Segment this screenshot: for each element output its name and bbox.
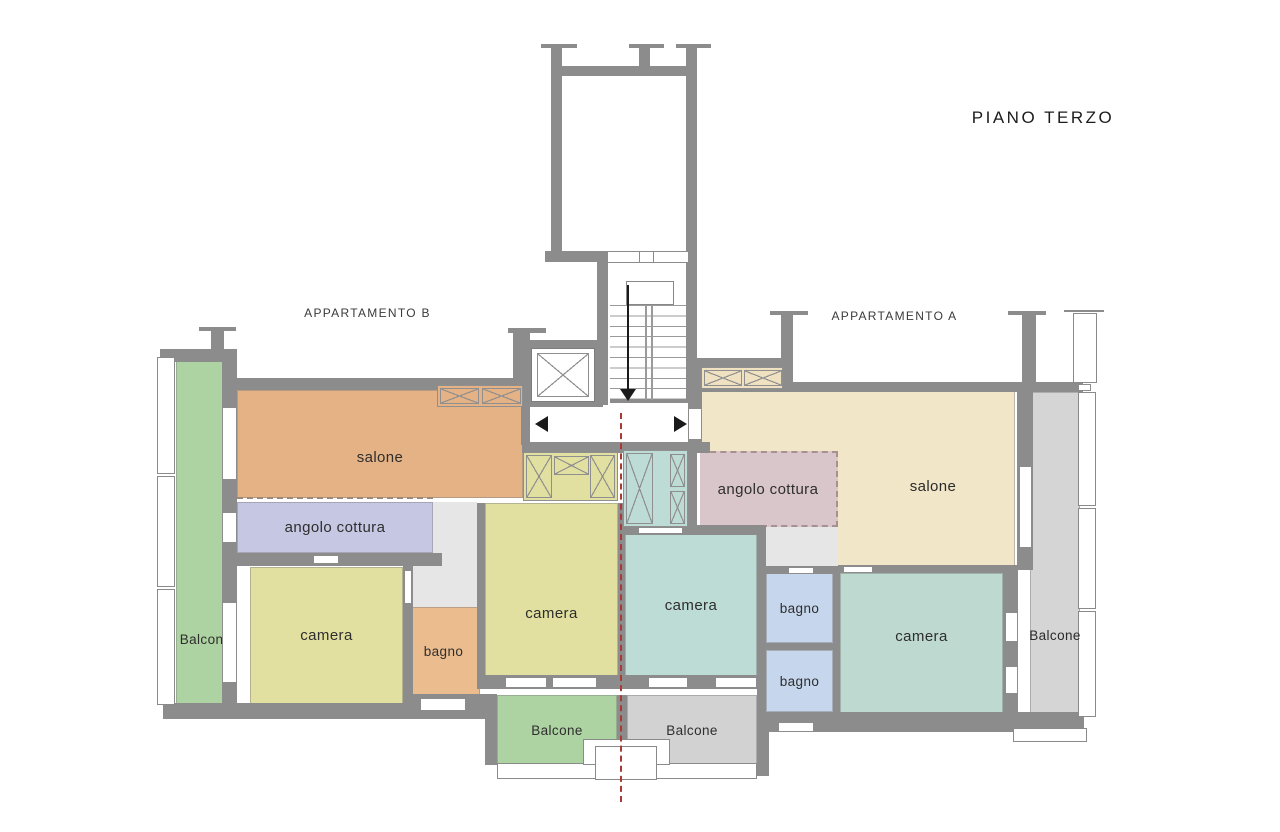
room-camera-a-mid: camera [625,533,757,677]
room-angolo-cottura-a: angolo cottura [700,451,838,527]
window [222,602,237,683]
wall [477,503,485,677]
balcony-railing [1073,313,1097,383]
window [222,512,237,543]
room-bagno-a2: bagno [766,650,833,712]
wall [477,675,625,689]
room-label: angolo cottura [718,481,819,498]
balcony-railing [157,476,175,587]
window [420,698,466,711]
wall [639,47,650,66]
crossed-box-icon [670,491,685,524]
hallway-a [757,527,838,567]
room-camera-a: camera [840,573,1003,713]
wall [686,66,697,403]
wall [1064,310,1104,312]
wardrobe-icon [701,367,783,389]
crossed-box-icon [626,453,653,524]
door-opening [404,570,412,604]
window [1078,384,1091,391]
apartment-b-label: APPARTAMENTO B [280,306,455,320]
wardrobe-icon [437,385,523,407]
window [1019,466,1032,548]
room-label: camera [665,597,717,614]
balcony-railing [1013,728,1087,742]
elevator-icon [537,353,589,397]
room-camera-b2: camera [485,503,618,677]
wall [766,643,835,650]
corridor-left-arrow-icon [535,416,548,432]
unit-divider-line [620,413,622,802]
wall [1022,315,1036,383]
balcony-railing [157,357,175,474]
window [778,722,814,732]
room-label: bagno [780,601,820,616]
window [552,677,597,688]
crossed-box-icon [590,455,615,498]
wall [551,47,562,66]
room-camera-b1: camera [250,567,403,704]
crossed-box-icon [440,388,479,404]
wall [211,331,224,350]
door-opening [788,567,814,574]
door-opening [843,566,873,573]
dashed-room-divider [237,497,433,499]
window [639,251,654,263]
stair-stringer [645,305,647,400]
room-label: camera [300,627,352,644]
wall [757,525,766,712]
door-opening [313,555,339,564]
balcony-railing [1078,508,1096,609]
room-angolo-cottura-b: angolo cottura [237,502,433,553]
wall [833,573,840,713]
wall [545,251,607,262]
room-label: Balcone [1022,628,1088,643]
wall [485,719,497,765]
window [638,527,683,534]
window [648,677,688,688]
room-bagno-a1: bagno [766,573,833,643]
stairs-down-arrow-icon [620,389,636,401]
stair-treads [610,305,686,399]
room-label: bagno [424,644,464,659]
apartment-a-label: APPARTAMENTO A [807,309,982,323]
wall [757,712,769,776]
window [715,677,757,688]
wall [551,76,562,252]
wall [551,66,697,76]
floor-plan: PIANO TERZO APPARTAMENTO B APPARTAMENTO … [0,0,1280,832]
crossed-box-icon [670,454,685,487]
stair-stringer [651,305,653,400]
page-title: PIANO TERZO [958,108,1128,128]
room-label: Balcone [531,723,583,738]
crossed-box-icon [554,456,589,475]
window [222,407,237,480]
window [505,677,547,688]
room-label: salone [870,478,996,495]
room-label: angolo cottura [285,519,386,536]
room-label: camera [525,605,577,622]
hallway-b [433,502,477,553]
wall [700,358,785,367]
wall [686,47,697,66]
door-opening [688,408,702,440]
balcony-step [595,746,657,780]
room-label: salone [357,449,404,466]
balcony-railing [1078,392,1096,506]
elevator [531,348,595,402]
stair-landing [626,281,674,305]
balcony-railing [157,589,175,705]
stairs-direction-line [627,285,629,389]
wardrobe-icon [623,450,688,527]
room-label: bagno [780,674,820,689]
window [1005,612,1018,642]
corridor-right-arrow-icon [674,416,687,432]
crossed-box-icon [744,370,782,386]
crossed-box-icon [526,455,552,498]
crossed-box-icon [704,370,742,386]
room-label: Balcone [666,723,718,738]
room-bagno-b: bagno [407,607,480,696]
room-label: camera [895,628,947,645]
window [1005,666,1018,694]
crossed-box-icon [482,388,521,404]
balcony-railing [1078,611,1096,717]
wardrobe-icon [523,452,618,501]
room-balcone-a-right [1030,392,1080,717]
wall [688,453,697,527]
wall [521,405,530,445]
